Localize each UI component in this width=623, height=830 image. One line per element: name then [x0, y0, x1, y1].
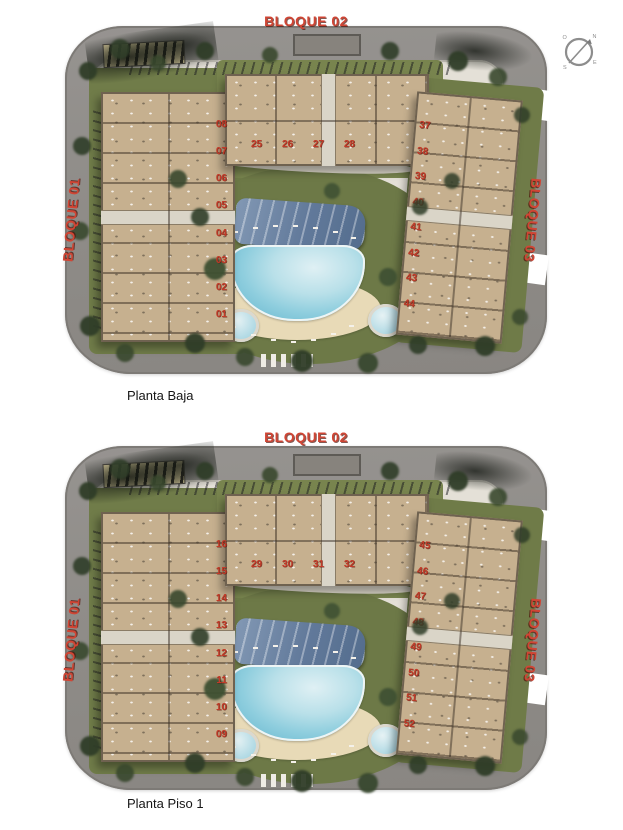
- building-bloque-02: 25 26 27 28: [225, 74, 429, 166]
- unit-number: 26: [282, 140, 293, 150]
- label-bloque-02: BLOQUE 02: [264, 429, 348, 445]
- unit-number: 28: [344, 140, 355, 150]
- compass-e: E: [593, 60, 597, 66]
- building-bloque-03: 37 38 39 40 41 42 43 44: [396, 91, 523, 343]
- trees: [65, 446, 75, 456]
- unit-number: 49: [410, 643, 422, 654]
- unit-number: 39: [414, 172, 426, 183]
- compass-n: N: [593, 34, 597, 40]
- unit-number: 51: [405, 693, 417, 704]
- unit-number: 47: [414, 592, 426, 603]
- unit-number: 44: [403, 299, 415, 310]
- unit-number: 10: [216, 703, 227, 713]
- unit-number: 16: [216, 540, 227, 550]
- unit-number: 48: [412, 617, 424, 628]
- unit-number: 40: [412, 197, 424, 208]
- caption-planta-piso-1: Planta Piso 1: [127, 796, 204, 811]
- compass-icon: N O E S: [556, 28, 602, 74]
- unit-numbers-bloque-01: 08 07 06 05 04 03 02 01: [216, 120, 227, 320]
- building-breezeway: [321, 494, 336, 586]
- unit-number: 04: [216, 229, 227, 239]
- unit-number: 05: [216, 201, 227, 211]
- unit-number: 14: [216, 594, 227, 604]
- building-bloque-01: 16 15 14 13 12 11 10 09: [101, 512, 235, 762]
- unit-number: 52: [403, 719, 415, 730]
- unit-number: 12: [216, 649, 227, 659]
- label-bloque-01: BLOQUE 01: [59, 589, 84, 690]
- building-bloque-03: 45 46 47 48 49 50 51 52: [396, 511, 523, 763]
- unit-number: 15: [216, 567, 227, 577]
- unit-numbers-bloque-02: 25 26 27 28: [251, 140, 355, 150]
- unit-number: 41: [410, 223, 422, 234]
- unit-number: 46: [417, 566, 429, 577]
- unit-number: 07: [216, 147, 227, 157]
- unit-number: 06: [216, 174, 227, 184]
- perimeter-road: 08 07 06 05 04 03 02 01 25 26 27 28 37: [65, 26, 547, 374]
- unit-numbers-bloque-02: 29 30 31 32: [251, 560, 355, 570]
- north-entrance: [293, 454, 361, 476]
- unit-number: 11: [216, 676, 227, 686]
- building-bloque-02: 29 30 31 32: [225, 494, 429, 586]
- label-bloque-01: BLOQUE 01: [59, 169, 84, 270]
- site-plan-planta-piso-1: 16 15 14 13 12 11 10 09 29 30 31 32 45: [65, 446, 547, 790]
- unit-number: 27: [313, 140, 324, 150]
- pedestrian-crossing: [261, 354, 313, 367]
- label-bloque-02: BLOQUE 02: [264, 13, 348, 29]
- unit-number: 25: [251, 140, 262, 150]
- unit-number: 02: [216, 283, 227, 293]
- unit-number: 43: [405, 273, 417, 284]
- building-bloque-01: 08 07 06 05 04 03 02 01: [101, 92, 235, 342]
- caption-planta-baja: Planta Baja: [127, 388, 194, 403]
- compass-s: S: [563, 65, 567, 71]
- unit-number: 38: [417, 146, 429, 157]
- building-breezeway: [321, 74, 336, 166]
- unit-number: 31: [313, 560, 324, 570]
- trees: [65, 26, 75, 36]
- compass-o: O: [563, 35, 568, 41]
- unit-number: 09: [216, 730, 227, 740]
- unit-number: 30: [282, 560, 293, 570]
- unit-number: 42: [408, 248, 420, 259]
- unit-number: 45: [419, 541, 431, 552]
- unit-number: 32: [344, 560, 355, 570]
- unit-number: 37: [419, 121, 431, 132]
- perimeter-road: 16 15 14 13 12 11 10 09 29 30 31 32 45: [65, 446, 547, 790]
- unit-number: 03: [216, 256, 227, 266]
- unit-number: 29: [251, 560, 262, 570]
- unit-number: 50: [408, 668, 420, 679]
- site-plan-planta-baja: 08 07 06 05 04 03 02 01 25 26 27 28 37: [65, 26, 547, 374]
- unit-number: 01: [216, 310, 227, 320]
- unit-number: 13: [216, 621, 227, 631]
- unit-number: 08: [216, 120, 227, 130]
- unit-numbers-bloque-01: 16 15 14 13 12 11 10 09: [216, 540, 227, 740]
- pedestrian-crossing: [261, 774, 313, 787]
- north-entrance: [293, 34, 361, 56]
